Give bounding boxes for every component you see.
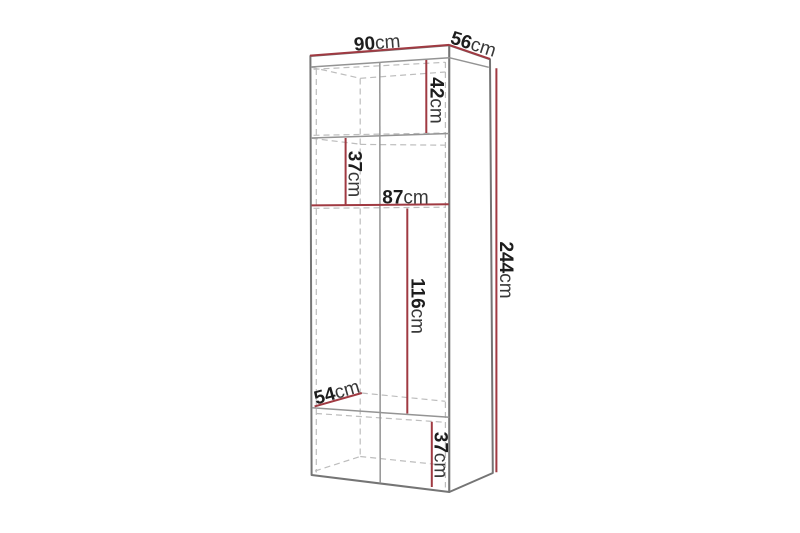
svg-text:42cm: 42cm xyxy=(426,77,447,123)
svg-text:90cm: 90cm xyxy=(353,31,401,56)
svg-text:116cm: 116cm xyxy=(406,278,427,334)
svg-text:37cm: 37cm xyxy=(430,432,451,478)
svg-text:37cm: 37cm xyxy=(344,151,365,197)
svg-text:244cm: 244cm xyxy=(495,241,516,298)
svg-text:87cm: 87cm xyxy=(382,187,428,208)
